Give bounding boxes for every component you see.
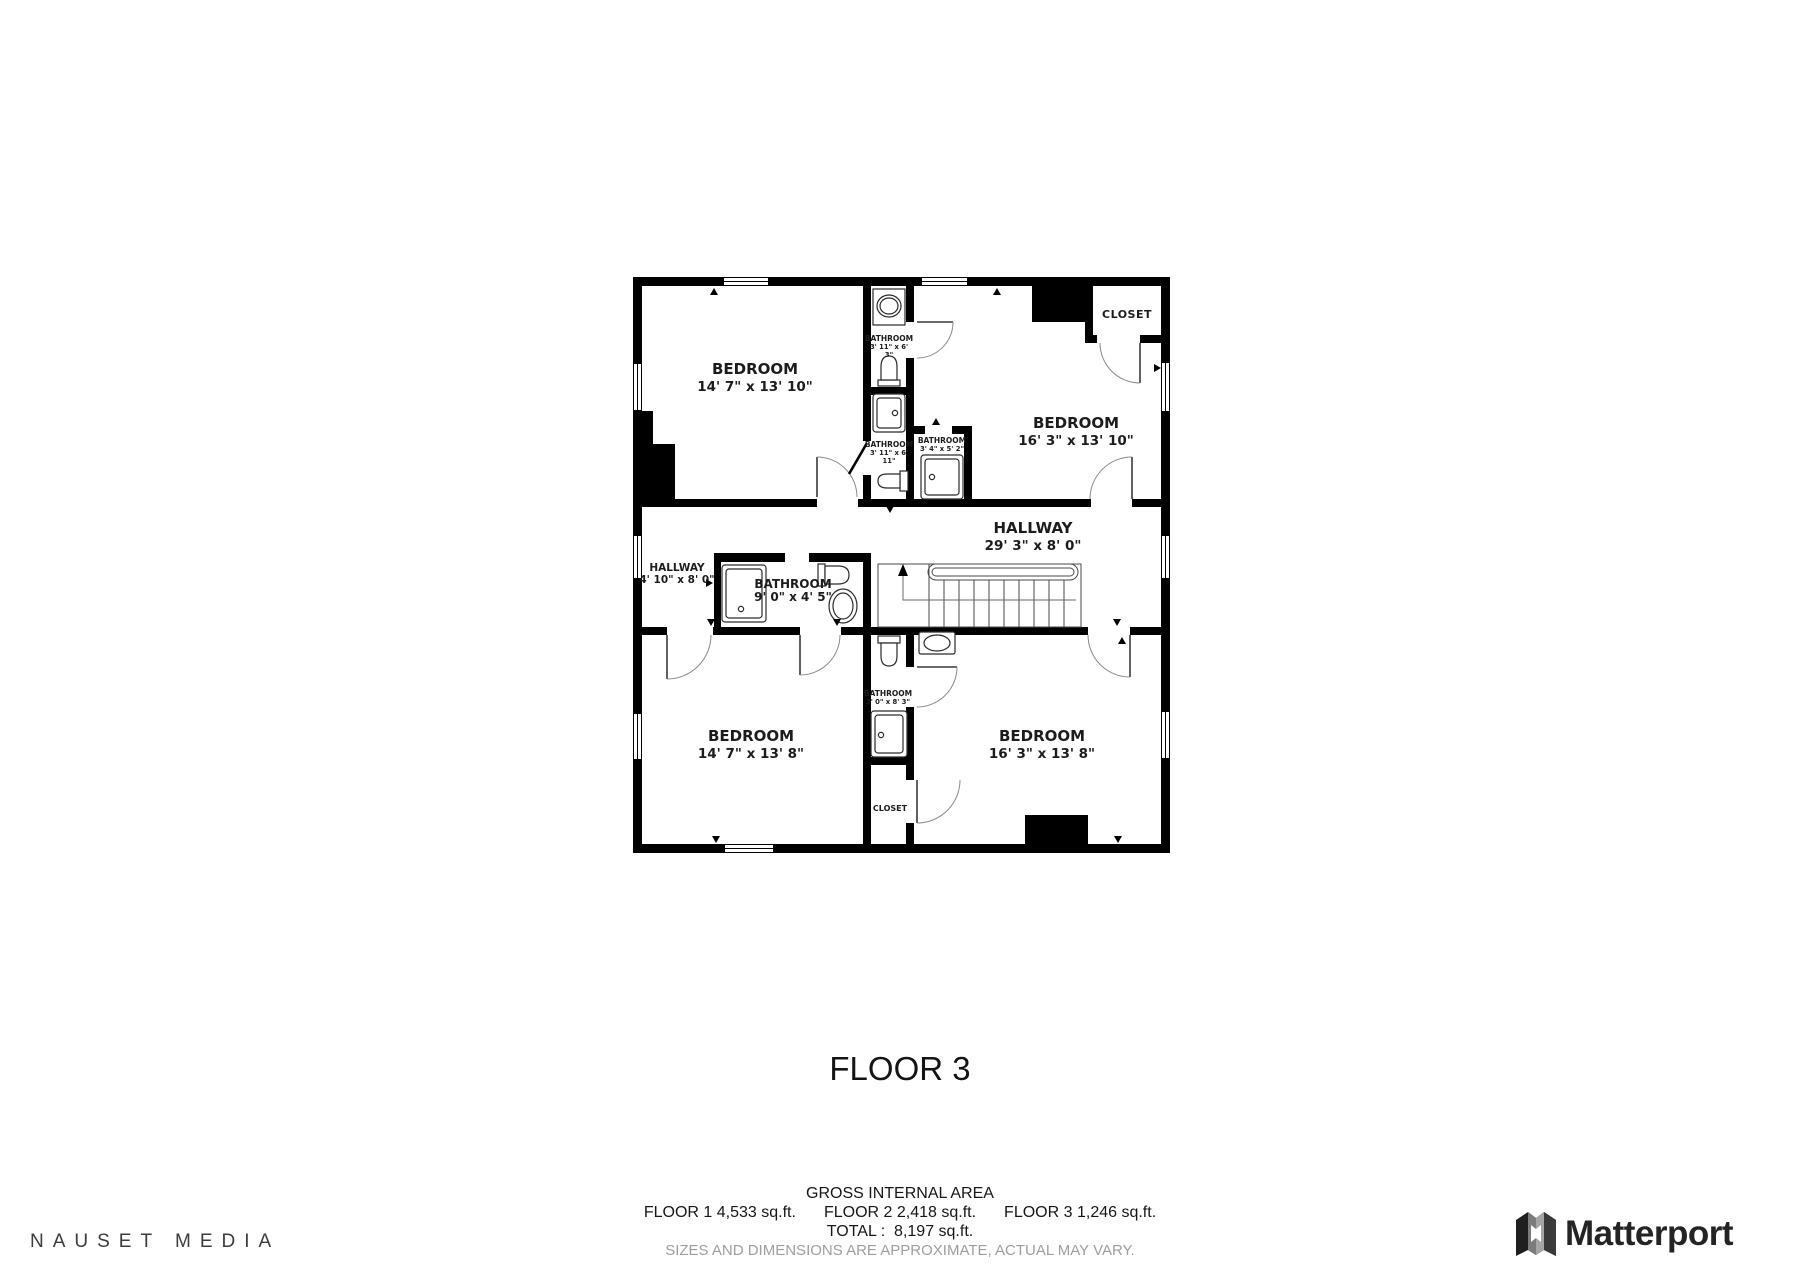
floor-title: FLOOR 3 <box>0 1050 1800 1088</box>
toilet-icon <box>900 471 908 491</box>
gross-internal-area-label: GROSS INTERNAL AREA <box>0 1184 1800 1203</box>
room-label: BATHROOM <box>865 440 913 449</box>
room-label: BEDROOM <box>708 727 794 745</box>
nauset-media-logo: NAUSET MEDIA <box>30 1231 280 1253</box>
room-label: 3' 11" x 6' <box>870 449 908 457</box>
room-label: 29' 3" x 8' 0" <box>985 538 1082 554</box>
toilet-icon <box>878 636 900 643</box>
floor1-area: FLOOR 1 4,533 sq.ft. <box>644 1204 796 1221</box>
room-label: BEDROOM <box>1033 414 1119 432</box>
room-label: BEDROOM <box>712 360 798 378</box>
room-label: CLOSET <box>873 804 908 813</box>
room-label: BATHROOM <box>865 334 913 343</box>
room-label: 11" <box>883 457 896 465</box>
toilet-icon <box>878 380 900 386</box>
matterport-logo: Matterport <box>1516 1212 1733 1256</box>
room-label: 16' 3" x 13' 10" <box>1018 433 1134 449</box>
matterport-wordmark: Matterport <box>1565 1214 1733 1254</box>
room-label: BATHROOM <box>864 689 912 698</box>
room-label: 14' 7" x 13' 10" <box>697 379 813 395</box>
room-label: 4' 10" x 8' 0" <box>639 574 714 586</box>
room-label: HALLWAY <box>649 562 705 574</box>
floor2-area: FLOOR 2 2,418 sq.ft. <box>824 1204 976 1221</box>
matterport-icon <box>1516 1212 1556 1256</box>
room-label: 3' 4" x 5' 2" <box>920 445 964 453</box>
room-label: 14' 7" x 13' 8" <box>698 746 804 762</box>
room-label: BATHROOM <box>754 577 831 591</box>
page: BEDROOM14' 7" x 13' 10"BEDROOM16' 3" x 1… <box>0 0 1800 1273</box>
room-label: HALLWAY <box>993 519 1073 537</box>
room-label: 9' 0" x 4' 5" <box>754 590 832 604</box>
room-label: 3" <box>885 351 893 359</box>
room-label: CLOSET <box>1102 308 1152 321</box>
room-label: 16' 3" x 13' 8" <box>989 746 1095 762</box>
room-label: BATHROOM <box>918 436 966 445</box>
room-label: 3' 11" x 6' <box>870 343 908 351</box>
floor3-area: FLOOR 3 1,246 sq.ft. <box>1004 1204 1156 1221</box>
floorplan: BEDROOM14' 7" x 13' 10"BEDROOM16' 3" x 1… <box>633 277 1170 853</box>
room-label: BEDROOM <box>999 727 1085 745</box>
room-label: 3' 0" x 8' 3" <box>866 698 910 706</box>
